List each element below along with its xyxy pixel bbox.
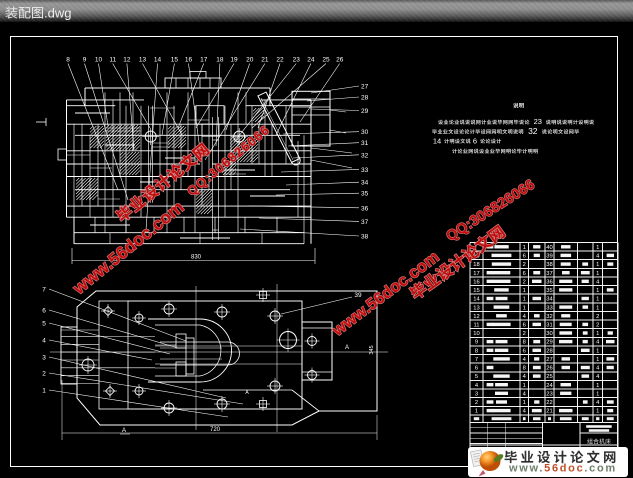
svg-text:34: 34 (361, 180, 369, 187)
svg-text:6: 6 (475, 366, 478, 372)
svg-text:31: 31 (361, 140, 369, 147)
svg-text:35: 35 (546, 288, 552, 294)
svg-text:28: 28 (546, 348, 552, 354)
svg-text:39: 39 (354, 292, 362, 299)
svg-text:4: 4 (523, 314, 527, 320)
svg-text:33: 33 (546, 305, 552, 311)
svg-text:1: 1 (596, 305, 599, 311)
svg-text:38: 38 (361, 234, 369, 241)
svg-text:21: 21 (546, 409, 552, 415)
svg-text:26: 26 (546, 366, 552, 372)
svg-text:4: 4 (596, 340, 600, 346)
svg-text:10: 10 (473, 331, 479, 337)
svg-text:1: 1 (523, 305, 526, 311)
svg-text:22: 22 (546, 400, 552, 406)
svg-text:15: 15 (171, 57, 179, 64)
svg-text:23: 23 (534, 117, 542, 126)
svg-text:9: 9 (475, 340, 478, 346)
svg-text:23: 23 (293, 57, 301, 64)
svg-text:11: 11 (109, 57, 116, 64)
svg-text:1: 1 (523, 245, 526, 251)
svg-text:1: 1 (596, 245, 599, 251)
svg-text:4: 4 (523, 357, 527, 363)
svg-text:39: 39 (546, 254, 552, 260)
svg-text:3: 3 (475, 391, 478, 397)
svg-text:17: 17 (200, 57, 208, 64)
svg-text:www.56doc.com: www.56doc.com (508, 463, 617, 475)
svg-text:32: 32 (546, 314, 552, 320)
svg-text:2: 2 (42, 371, 46, 378)
svg-text:12: 12 (473, 314, 479, 320)
svg-text:4: 4 (523, 391, 527, 397)
svg-text:4: 4 (42, 338, 46, 345)
svg-text:7: 7 (42, 287, 46, 294)
svg-text:1: 1 (596, 262, 599, 268)
svg-text:A: A (345, 345, 349, 351)
svg-text:33: 33 (361, 167, 369, 174)
svg-text:2: 2 (596, 314, 599, 320)
svg-text:1: 1 (596, 348, 599, 354)
svg-text:28: 28 (361, 95, 369, 102)
svg-text:6: 6 (523, 322, 526, 328)
svg-text:4: 4 (596, 254, 600, 260)
svg-text:QQ:306826066: QQ:306826066 (184, 122, 273, 199)
svg-text:6: 6 (523, 271, 526, 277)
svg-text:25: 25 (546, 374, 552, 380)
svg-text:345: 345 (369, 345, 375, 354)
svg-text:18: 18 (473, 262, 479, 268)
svg-text:36: 36 (546, 279, 552, 285)
svg-text:1: 1 (596, 271, 599, 277)
svg-text:30: 30 (361, 129, 369, 136)
svg-text:4: 4 (596, 400, 600, 406)
svg-text:10: 10 (95, 57, 103, 64)
svg-text:1: 1 (475, 409, 478, 415)
svg-text:830: 830 (191, 255, 202, 261)
svg-text:1: 1 (523, 297, 526, 303)
svg-text:32: 32 (361, 152, 369, 159)
svg-text:31: 31 (546, 322, 552, 328)
svg-text:14: 14 (473, 297, 480, 303)
svg-text:4: 4 (596, 279, 600, 285)
svg-text:.dwg: .dwg (44, 6, 71, 21)
svg-text:1: 1 (596, 383, 599, 389)
svg-text:8: 8 (523, 340, 526, 346)
svg-text:29: 29 (546, 340, 552, 346)
svg-text:26: 26 (336, 57, 344, 64)
svg-text:20: 20 (246, 57, 254, 64)
svg-text:17: 17 (473, 271, 479, 277)
svg-text:2: 2 (596, 322, 599, 328)
svg-text:3: 3 (42, 355, 46, 362)
svg-text:1: 1 (523, 400, 526, 406)
svg-text:720: 720 (210, 427, 221, 433)
svg-text:21: 21 (261, 57, 269, 64)
svg-text:30: 30 (546, 331, 552, 337)
svg-text:9: 9 (83, 57, 87, 64)
svg-text:14: 14 (433, 137, 441, 146)
svg-text:40: 40 (546, 245, 552, 251)
svg-text:5: 5 (42, 321, 46, 328)
svg-text:4: 4 (523, 409, 527, 415)
svg-text:1: 1 (523, 288, 526, 294)
svg-text:1: 1 (523, 383, 526, 389)
svg-text:1: 1 (596, 391, 599, 397)
svg-text:4: 4 (475, 383, 479, 389)
svg-text:16: 16 (185, 57, 193, 64)
svg-text:7: 7 (475, 357, 478, 363)
svg-text:6: 6 (473, 137, 477, 146)
svg-text:36: 36 (361, 205, 369, 212)
svg-text:4: 4 (523, 374, 527, 380)
svg-text:13: 13 (473, 305, 479, 311)
svg-text:www.56doc.com: www.56doc.com (68, 197, 187, 299)
svg-text:15: 15 (473, 288, 479, 294)
svg-text:16: 16 (473, 279, 479, 285)
svg-text:8: 8 (66, 57, 70, 64)
svg-text:27: 27 (546, 357, 552, 363)
svg-text:1: 1 (596, 357, 599, 363)
svg-text:11: 11 (473, 322, 479, 328)
svg-text:12: 12 (123, 57, 131, 64)
svg-text:14: 14 (154, 57, 162, 64)
svg-text:2: 2 (523, 262, 526, 268)
svg-text:6: 6 (523, 254, 526, 260)
svg-text:1: 1 (42, 388, 46, 395)
svg-text:2: 2 (475, 400, 478, 406)
svg-text:6: 6 (523, 348, 526, 354)
svg-text:1: 1 (596, 297, 599, 303)
svg-text:24: 24 (546, 383, 553, 389)
svg-text:24: 24 (307, 57, 315, 64)
svg-text:4: 4 (596, 374, 600, 380)
svg-text:1: 1 (596, 331, 599, 337)
svg-text:1: 1 (596, 288, 599, 294)
svg-text:23: 23 (546, 391, 552, 397)
svg-text:8: 8 (475, 348, 478, 354)
svg-text:A: A (122, 428, 126, 434)
svg-text:8: 8 (523, 366, 526, 372)
svg-text:27: 27 (361, 84, 369, 91)
svg-text:19: 19 (230, 57, 238, 64)
svg-text:35: 35 (361, 191, 369, 198)
svg-text:2: 2 (523, 331, 526, 337)
svg-text:18: 18 (216, 57, 224, 64)
svg-text:25: 25 (322, 57, 330, 64)
svg-text:A: A (245, 390, 249, 396)
svg-text:2: 2 (523, 279, 526, 285)
svg-text:38: 38 (546, 262, 552, 268)
svg-text:www.56doc.com: www.56doc.com (328, 248, 442, 340)
svg-text:1: 1 (596, 409, 599, 415)
svg-text:5: 5 (475, 374, 478, 380)
svg-text:6: 6 (42, 308, 46, 315)
svg-text:4: 4 (596, 366, 600, 372)
svg-text:34: 34 (546, 297, 553, 303)
svg-text:13: 13 (139, 57, 147, 64)
svg-text:22: 22 (276, 57, 284, 64)
svg-text:37: 37 (361, 219, 369, 226)
svg-text:29: 29 (361, 108, 369, 115)
svg-text:37: 37 (546, 271, 552, 277)
svg-text:32: 32 (528, 126, 538, 136)
